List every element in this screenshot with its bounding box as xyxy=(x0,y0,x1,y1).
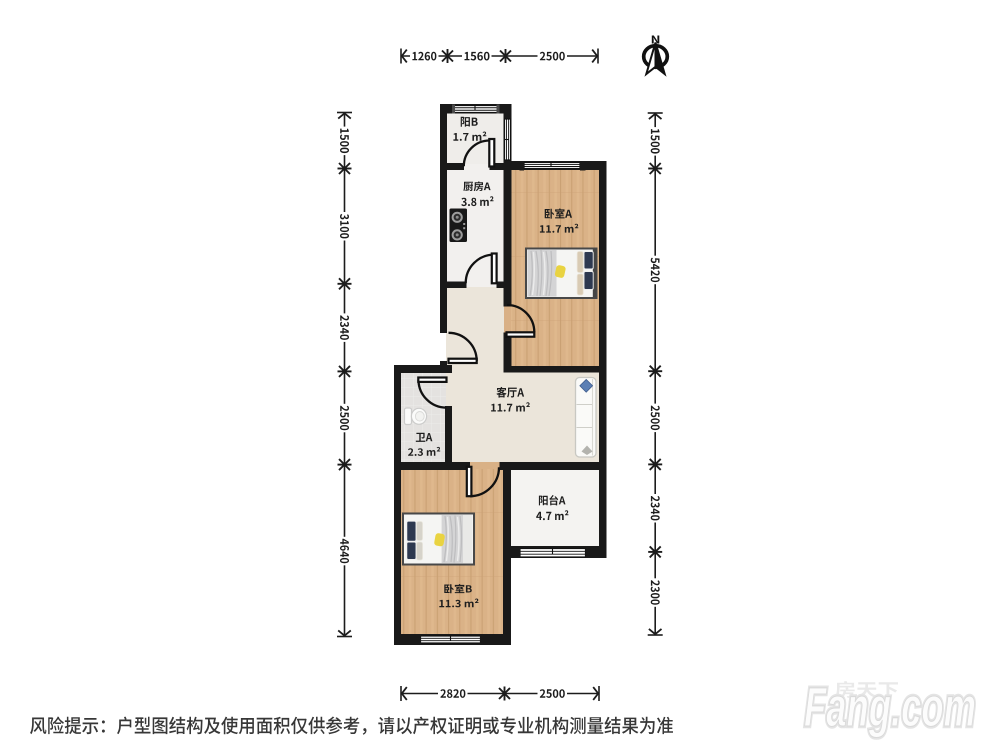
svg-text:Fang.com: Fang.com xyxy=(804,675,976,738)
